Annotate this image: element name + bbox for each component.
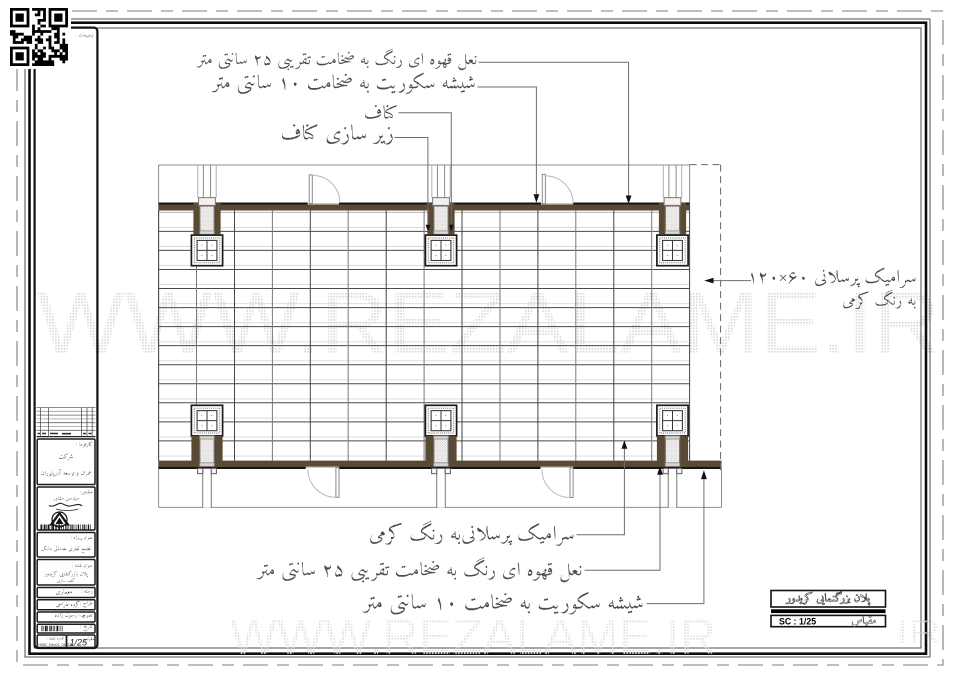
- svg-text:SC : 1/25: SC : 1/25: [779, 617, 816, 627]
- svg-text:WWW.REZALAME.IR: WWW.REZALAME.IR: [230, 609, 716, 665]
- svg-text:H062_Rev01_040228: H062_Rev01_040228: [39, 643, 74, 647]
- svg-text:IR: IR: [896, 614, 941, 650]
- svg-text:1/25: 1/25: [70, 637, 89, 647]
